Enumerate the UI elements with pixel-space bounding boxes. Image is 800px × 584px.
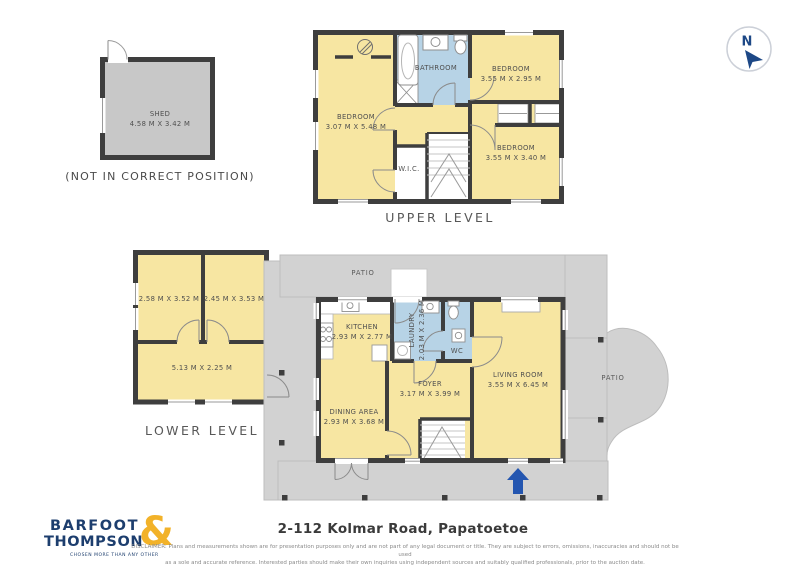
lower-level-label: LOWER LEVEL — [145, 423, 259, 438]
shed-window-icon — [100, 98, 106, 133]
dining-area-label: DINING AREA 2.93 M X 3.68 M — [324, 407, 385, 427]
laundry-label: LAUNDRY 2.03 M X 2.36 M — [407, 300, 427, 361]
kitchen-cupboard-icon — [372, 345, 387, 361]
disclaimer-line2: as a sole and accurate reference. Intere… — [125, 560, 685, 568]
wc-label: WC — [451, 346, 463, 356]
lower-room-bottom-label: 5.13 M X 2.25 M — [172, 363, 233, 373]
floor-plan-page: SHED 4.58 M X 3.42 M (NOT IN CORRECT POS… — [0, 0, 800, 584]
foyer-label: FOYER 3.17 M X 3.99 M — [400, 379, 461, 399]
upper-level-plan: BEDROOM 3.07 M X 5.48 M BEDROOM 3.55 M X… — [313, 30, 565, 205]
bedroom-bottom-right-label: BEDROOM 3.55 M X 3.40 M — [486, 143, 547, 163]
bathtub-icon — [398, 35, 418, 85]
disclaimer-line1: DISCLAIMER: Plans and measurements shown… — [125, 544, 685, 560]
bedroom-left-label: BEDROOM 3.07 M X 5.48 M — [326, 112, 387, 132]
patio-landing — [391, 269, 427, 297]
compass-n-label: N — [742, 35, 753, 50]
north-compass: N — [725, 25, 773, 73]
lower-room-top-left-label: 2.58 M X 3.52 M — [139, 294, 200, 304]
patio-top-label: PATIO — [351, 268, 374, 278]
kitchen-label: KITCHEN 2.93 M X 2.77 M — [332, 322, 393, 342]
wc-toilet-icon — [448, 301, 459, 319]
bathroom-label: BATHROOM — [415, 63, 457, 73]
stairwell-floor — [427, 133, 470, 201]
wic-label: W.I.C. — [398, 164, 419, 174]
shed-door-icon — [108, 41, 128, 64]
shed-label: SHED 4.58 M X 3.42 M — [130, 109, 191, 129]
living-room-label: LIVING ROOM 3.55 M X 6.45 M — [488, 370, 549, 390]
toilet-icon — [454, 35, 467, 54]
lower-plan-drawing — [133, 250, 269, 405]
shed-plan: SHED 4.58 M X 3.42 M — [98, 38, 218, 163]
bedroom-top-right-label: BEDROOM 3.55 M X 2.95 M — [481, 64, 542, 84]
upper-level-label: UPPER LEVEL — [385, 210, 494, 225]
property-address: 2-112 Kolmar Road, Papatoetoe — [103, 521, 703, 537]
wc-basin-icon — [452, 329, 465, 342]
lower-room-top-right-label: 2.45 M X 3.53 M — [204, 294, 265, 304]
shed-plan-drawing — [98, 38, 218, 163]
main-level-plan: KITCHEN 2.93 M X 2.77 M LAUNDRY 2.03 M X… — [262, 253, 668, 505]
lower-level-plan: 2.58 M X 3.52 M 2.45 M X 3.53 M 5.13 M X… — [133, 250, 269, 405]
shed-note: (NOT IN CORRECT POSITION) — [65, 170, 255, 183]
bathroom-sink-icon — [423, 35, 448, 50]
disclaimer-text: DISCLAIMER: Plans and measurements shown… — [125, 544, 685, 568]
patio-right-label: PATIO — [601, 373, 624, 383]
patio-blob — [607, 328, 668, 456]
